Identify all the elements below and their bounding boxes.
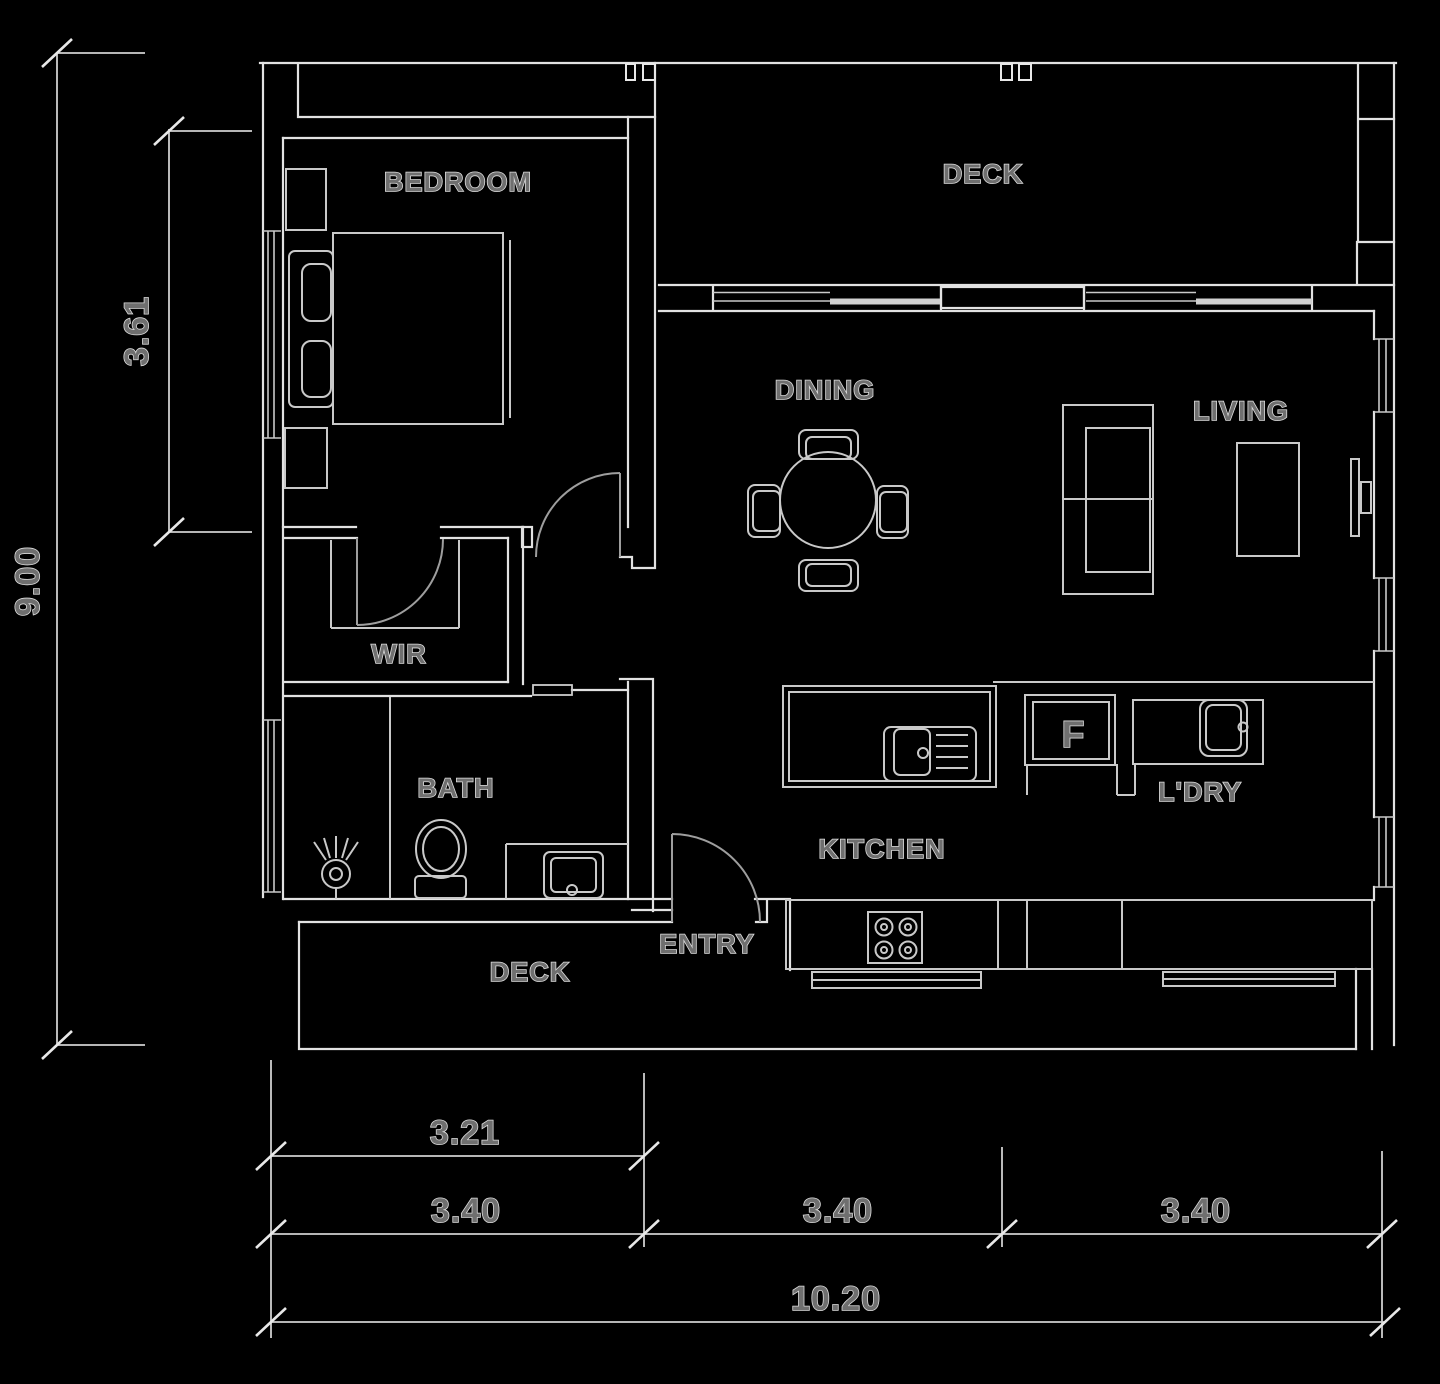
svg-text:ENTRY: ENTRY (659, 929, 755, 959)
svg-text:DECK: DECK (490, 957, 571, 987)
svg-text:WIR: WIR (371, 639, 426, 669)
svg-text:BATH: BATH (418, 773, 495, 803)
svg-text:3.21: 3.21 (430, 1114, 500, 1152)
svg-text:L'DRY: L'DRY (1158, 777, 1242, 807)
svg-text:KITCHEN: KITCHEN (819, 834, 946, 864)
svg-text:LIVING: LIVING (1193, 396, 1289, 426)
svg-text:3.61: 3.61 (118, 296, 156, 366)
svg-text:DINING: DINING (775, 375, 876, 405)
svg-text:3.40: 3.40 (1161, 1192, 1231, 1230)
svg-text:F: F (1062, 714, 1085, 755)
svg-text:10.20: 10.20 (791, 1280, 881, 1318)
svg-text:9.00: 9.00 (9, 546, 47, 616)
svg-text:3.40: 3.40 (803, 1192, 873, 1230)
svg-text:BEDROOM: BEDROOM (384, 167, 532, 197)
svg-text:DECK: DECK (943, 159, 1024, 189)
svg-text:3.40: 3.40 (431, 1192, 501, 1230)
